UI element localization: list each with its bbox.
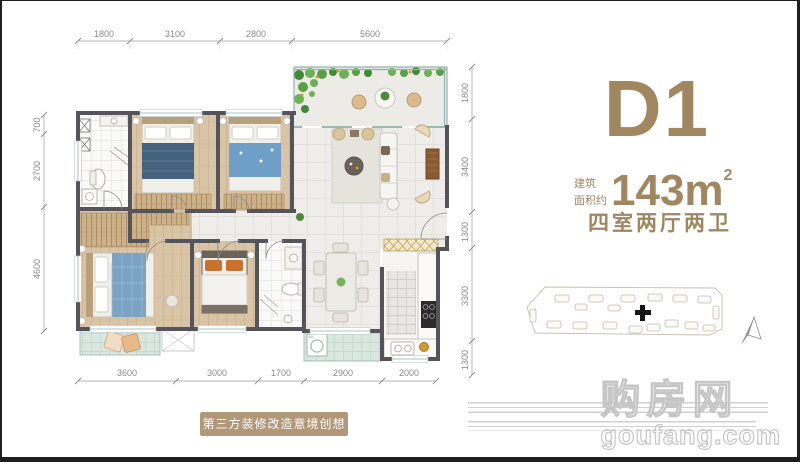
nightstand <box>133 118 140 125</box>
nightstand <box>248 252 255 259</box>
dining-chair <box>314 261 324 275</box>
pillow <box>257 127 278 139</box>
basin <box>111 118 117 124</box>
svg-text:2900: 2900 <box>333 368 353 378</box>
nightstand <box>195 252 202 259</box>
area-prefix: 建筑 面积约 <box>574 176 607 209</box>
wardrobe <box>224 194 284 209</box>
dimensions-left: 700 2700 4600 <box>32 112 47 334</box>
armchair <box>333 128 345 140</box>
headboard <box>202 251 247 258</box>
headboard <box>142 117 194 124</box>
small-basin <box>284 315 292 323</box>
svg-text:2700: 2700 <box>32 161 42 181</box>
svg-text:3000: 3000 <box>207 368 227 378</box>
pillow <box>226 260 243 271</box>
svg-text:1300: 1300 <box>460 222 470 242</box>
coffee-table <box>345 157 363 175</box>
side-table <box>350 130 359 137</box>
tv-cabinet <box>426 149 439 179</box>
floor-plan: 1800 3100 2800 5600 3600 3000 1700 2900 … <box>2 1 502 401</box>
layout-description: 四室两厅两卫 <box>562 207 758 237</box>
svg-text:1800: 1800 <box>94 29 114 39</box>
terrace-table-plant <box>381 92 390 101</box>
floorplan-page: 1800 3100 2800 5600 3600 3000 1700 2900 … <box>0 0 800 462</box>
dimensions-right: 1800 3400 1300 3300 1300 <box>460 64 475 378</box>
kettle <box>420 343 429 352</box>
pillow <box>95 287 108 312</box>
dining-chair <box>333 243 348 252</box>
dimensions-bottom: 3600 3000 1700 2900 2000 <box>75 368 439 384</box>
svg-text:3600: 3600 <box>117 368 137 378</box>
dining-chair <box>358 261 368 275</box>
bedroom-3 <box>220 117 291 209</box>
washer-cabinet <box>82 189 97 204</box>
pillow <box>95 257 108 282</box>
north-arrow-icon <box>741 317 761 345</box>
site-plan <box>517 273 767 358</box>
svg-text:3100: 3100 <box>165 29 185 39</box>
terrace-chair <box>407 93 421 107</box>
sofa-pillow <box>381 146 390 155</box>
svg-text:3400: 3400 <box>460 157 470 177</box>
headboard <box>229 117 281 124</box>
svg-text:1300: 1300 <box>460 350 470 370</box>
fine-print-paragraph <box>468 402 768 416</box>
sofa-pillow <box>381 173 390 182</box>
fine-print-paragraph <box>468 421 756 431</box>
terrace-chair <box>352 95 366 109</box>
nightstand <box>284 118 291 125</box>
svg-text:5600: 5600 <box>360 29 380 39</box>
svg-text:3300: 3300 <box>460 286 470 306</box>
dimensions-top: 1800 3100 2800 5600 <box>75 29 450 49</box>
pillow <box>170 127 191 139</box>
pillow <box>232 127 253 139</box>
pillow <box>145 127 166 139</box>
nightstand <box>197 118 204 125</box>
lounge-cushion <box>121 333 140 352</box>
pillow <box>205 260 222 271</box>
nightstand <box>220 118 227 125</box>
bed-foot-bench <box>202 305 247 313</box>
svg-text:1700: 1700 <box>271 368 291 378</box>
svg-text:1800: 1800 <box>460 83 470 103</box>
caption-badge: 第三方装修改造意境创想图 <box>200 412 348 436</box>
entry-cabinet <box>384 239 438 251</box>
dining-chair <box>333 313 348 322</box>
armchair <box>362 128 374 140</box>
blanket <box>112 253 146 317</box>
floor-lamp <box>387 198 399 210</box>
plant <box>296 213 304 221</box>
area-superscript: 2 <box>724 167 733 185</box>
blanket <box>229 143 281 177</box>
unit-name: D1 <box>577 69 737 149</box>
armchair <box>166 295 178 307</box>
wardrobe <box>151 213 189 225</box>
bedroom-4 <box>195 251 255 313</box>
dining-chair <box>358 288 368 302</box>
basin <box>290 254 298 262</box>
svg-text:4600: 4600 <box>32 259 42 279</box>
svg-text:2800: 2800 <box>246 29 266 39</box>
svg-text:700: 700 <box>32 117 42 132</box>
dining-chair <box>314 288 324 302</box>
svg-text:2000: 2000 <box>399 368 419 378</box>
toilet <box>282 283 300 295</box>
kitchen-tile <box>386 271 416 335</box>
headboard <box>86 253 93 317</box>
table-plant <box>337 278 346 287</box>
